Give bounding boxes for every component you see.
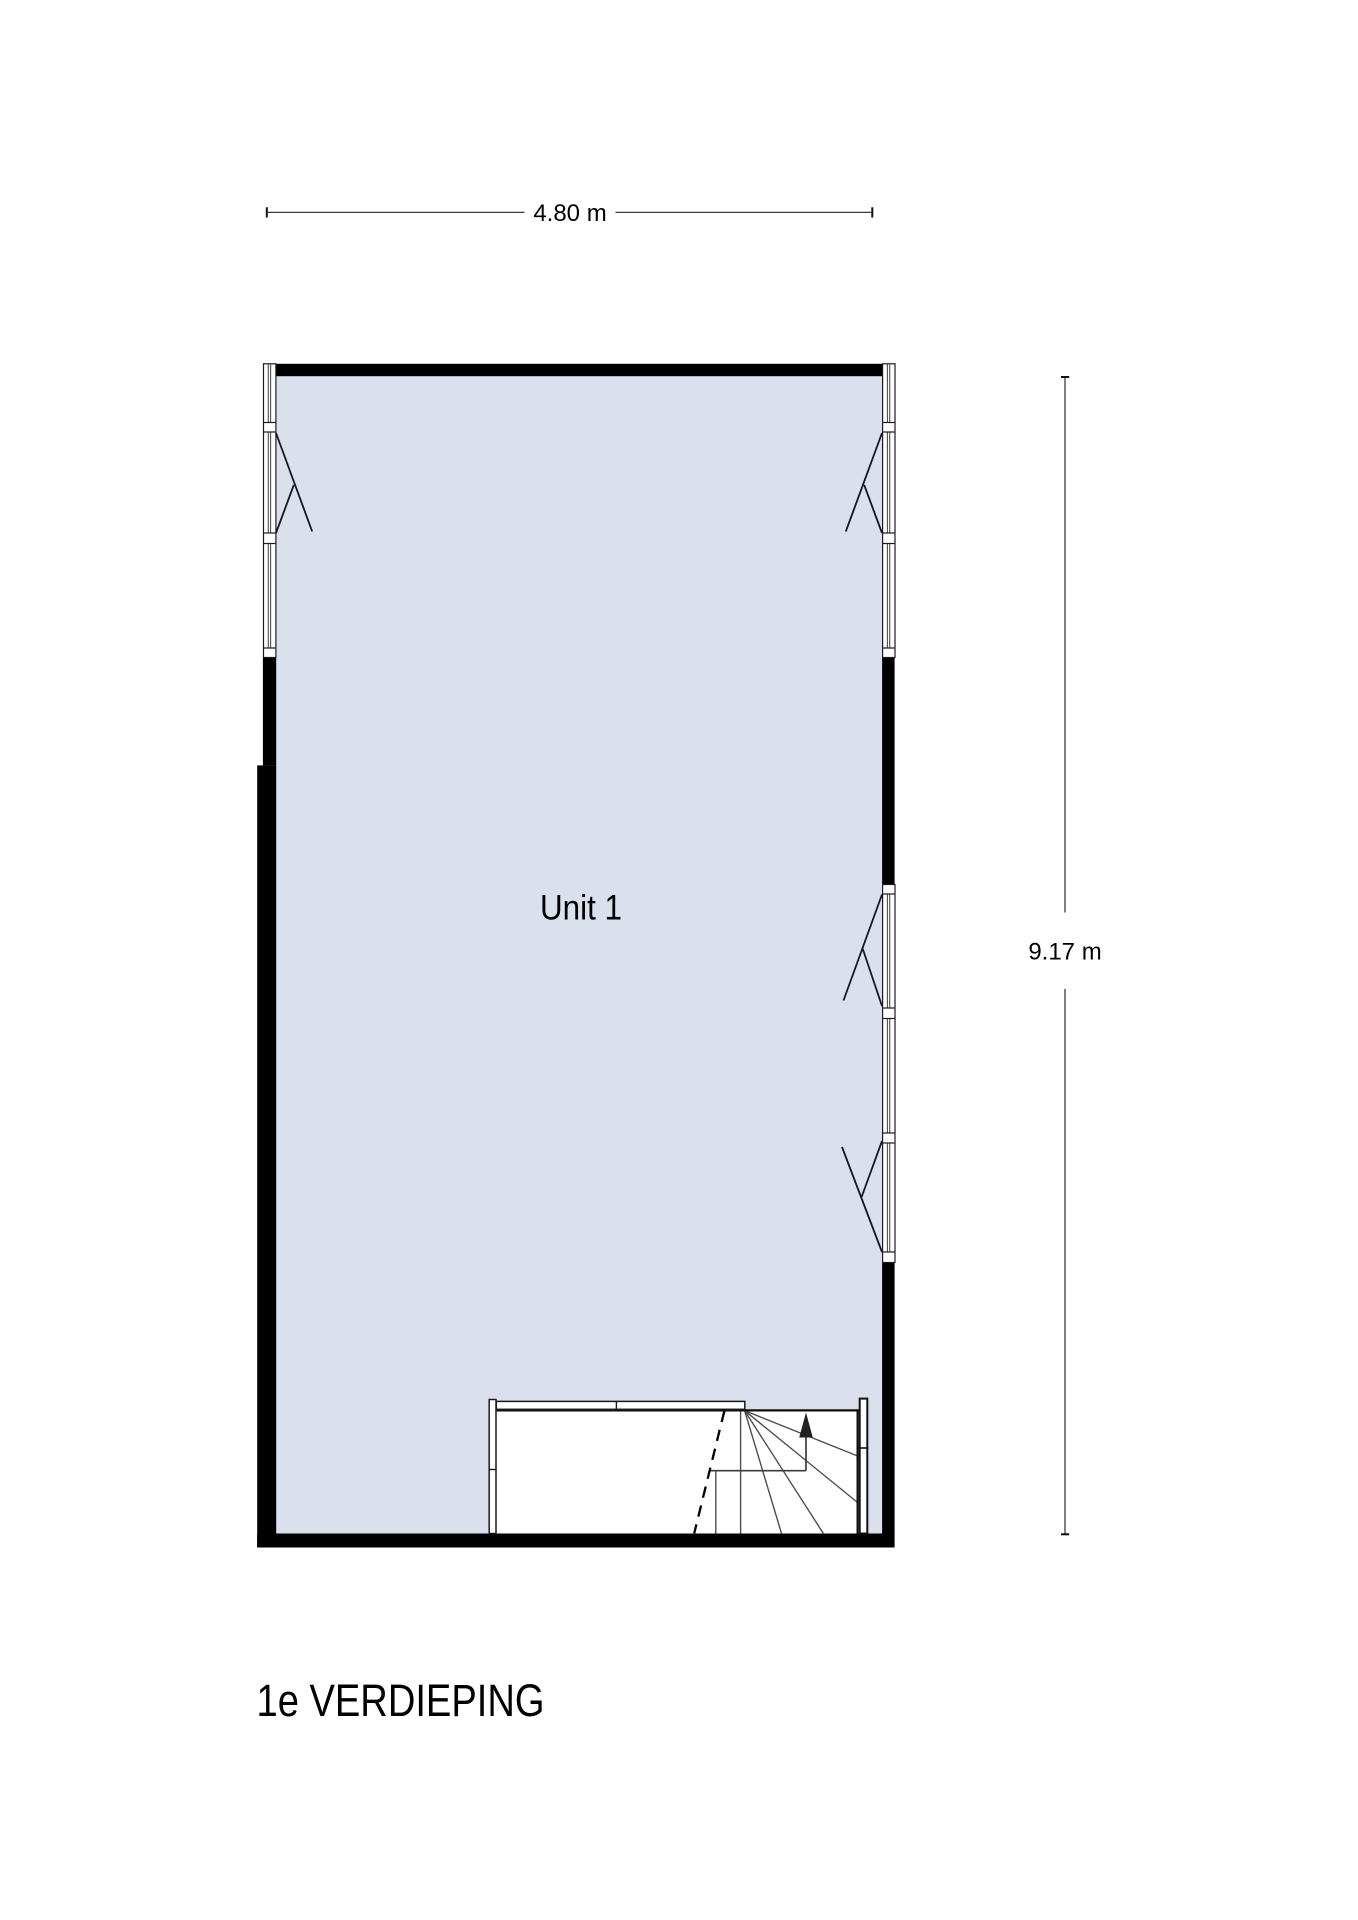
svg-text:1e VERDIEPING: 1e VERDIEPING: [257, 1675, 545, 1726]
svg-text:9.17 m: 9.17 m: [1028, 939, 1101, 966]
svg-text:4.80 m: 4.80 m: [533, 200, 606, 227]
svg-text:Unit 1: Unit 1: [540, 889, 622, 928]
